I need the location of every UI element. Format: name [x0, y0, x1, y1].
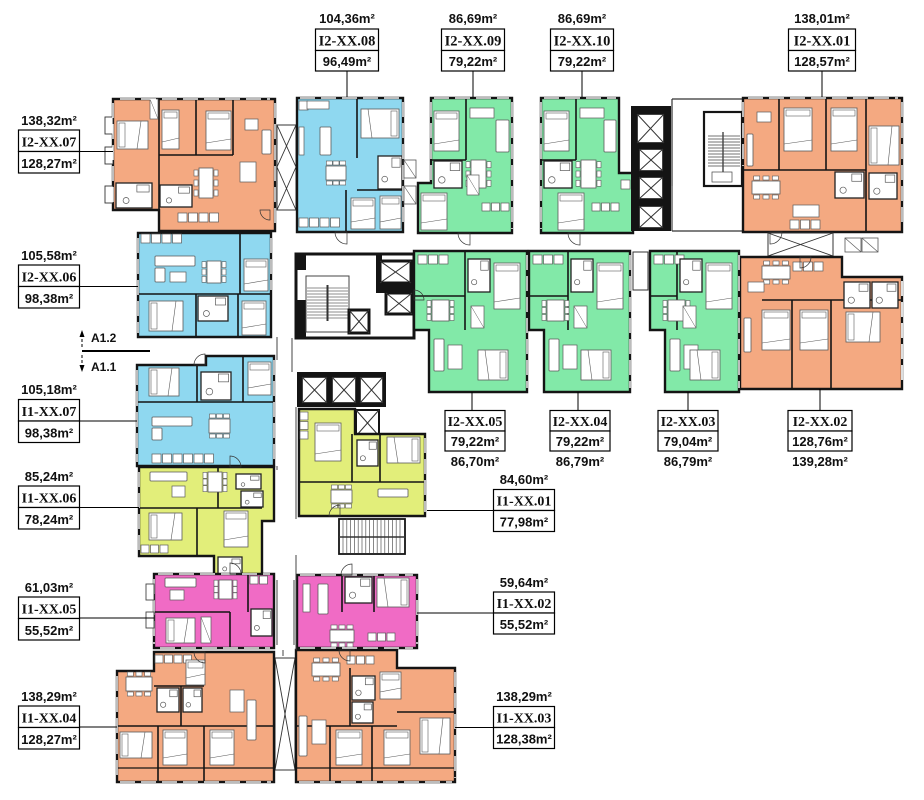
- svg-text:I2-XX.09: I2-XX.09: [445, 34, 502, 50]
- svg-text:128,76m²: 128,76m²: [792, 434, 848, 449]
- svg-text:I1-XX.04: I1-XX.04: [22, 712, 77, 727]
- svg-text:I1-XX.03: I1-XX.03: [497, 712, 552, 727]
- svg-text:128,38m²: 128,38m²: [496, 732, 552, 747]
- svg-text:138,29m²: 138,29m²: [21, 689, 77, 704]
- svg-text:I2-XX.08: I2-XX.08: [319, 34, 376, 50]
- svg-text:I2-XX.05: I2-XX.05: [448, 415, 503, 430]
- svg-text:79,04m²: 79,04m²: [664, 434, 713, 449]
- svg-text:98,38m²: 98,38m²: [25, 426, 74, 441]
- svg-text:I2-XX.03: I2-XX.03: [661, 415, 716, 430]
- svg-text:I2-XX.04: I2-XX.04: [553, 415, 608, 430]
- svg-text:I2-XX.06: I2-XX.06: [22, 271, 77, 286]
- svg-text:138,32m²: 138,32m²: [21, 113, 77, 128]
- svg-text:I1-XX.02: I1-XX.02: [497, 597, 552, 612]
- svg-text:86,69m²: 86,69m²: [558, 11, 607, 26]
- svg-text:79,22m²: 79,22m²: [558, 54, 607, 69]
- svg-text:I2-XX.07: I2-XX.07: [22, 136, 77, 151]
- svg-text:77,98m²: 77,98m²: [500, 515, 549, 530]
- svg-text:55,52m²: 55,52m²: [25, 623, 74, 638]
- svg-text:A1.2: A1.2: [91, 331, 117, 345]
- svg-text:I1-XX.06: I1-XX.06: [22, 492, 77, 507]
- svg-text:86,70m²: 86,70m²: [451, 454, 500, 469]
- svg-text:86,79m²: 86,79m²: [556, 454, 605, 469]
- svg-text:I2-XX.02: I2-XX.02: [793, 415, 848, 430]
- svg-text:128,27m²: 128,27m²: [21, 732, 77, 747]
- svg-text:128,57m²: 128,57m²: [794, 54, 850, 69]
- svg-text:I2-XX.10: I2-XX.10: [554, 34, 611, 50]
- svg-text:105,18m²: 105,18m²: [21, 382, 77, 397]
- svg-text:55,52m²: 55,52m²: [500, 617, 549, 632]
- svg-text:138,29m²: 138,29m²: [496, 689, 552, 704]
- svg-text:A1.1: A1.1: [91, 360, 117, 374]
- svg-text:I1-XX.05: I1-XX.05: [22, 603, 77, 618]
- svg-text:139,28m²: 139,28m²: [792, 454, 848, 469]
- svg-text:85,24m²: 85,24m²: [25, 469, 74, 484]
- svg-text:105,58m²: 105,58m²: [21, 248, 77, 263]
- svg-text:78,24m²: 78,24m²: [25, 512, 74, 527]
- svg-text:I2-XX.01: I2-XX.01: [794, 34, 851, 50]
- svg-text:61,03m²: 61,03m²: [25, 580, 74, 595]
- svg-text:79,22m²: 79,22m²: [451, 434, 500, 449]
- svg-text:79,22m²: 79,22m²: [556, 434, 605, 449]
- svg-text:86,79m²: 86,79m²: [664, 454, 713, 469]
- svg-text:138,01m²: 138,01m²: [794, 11, 850, 26]
- svg-text:I1-XX.01: I1-XX.01: [497, 495, 552, 510]
- svg-text:96,49m²: 96,49m²: [323, 54, 372, 69]
- svg-text:59,64m²: 59,64m²: [500, 575, 549, 590]
- svg-text:128,27m²: 128,27m²: [21, 156, 77, 171]
- svg-text:84,60m²: 84,60m²: [500, 472, 549, 487]
- svg-text:86,69m²: 86,69m²: [449, 11, 498, 26]
- svg-text:104,36m²: 104,36m²: [319, 11, 375, 26]
- svg-text:79,22m²: 79,22m²: [449, 54, 498, 69]
- svg-text:I1-XX.07: I1-XX.07: [22, 405, 77, 420]
- svg-text:98,38m²: 98,38m²: [25, 291, 74, 306]
